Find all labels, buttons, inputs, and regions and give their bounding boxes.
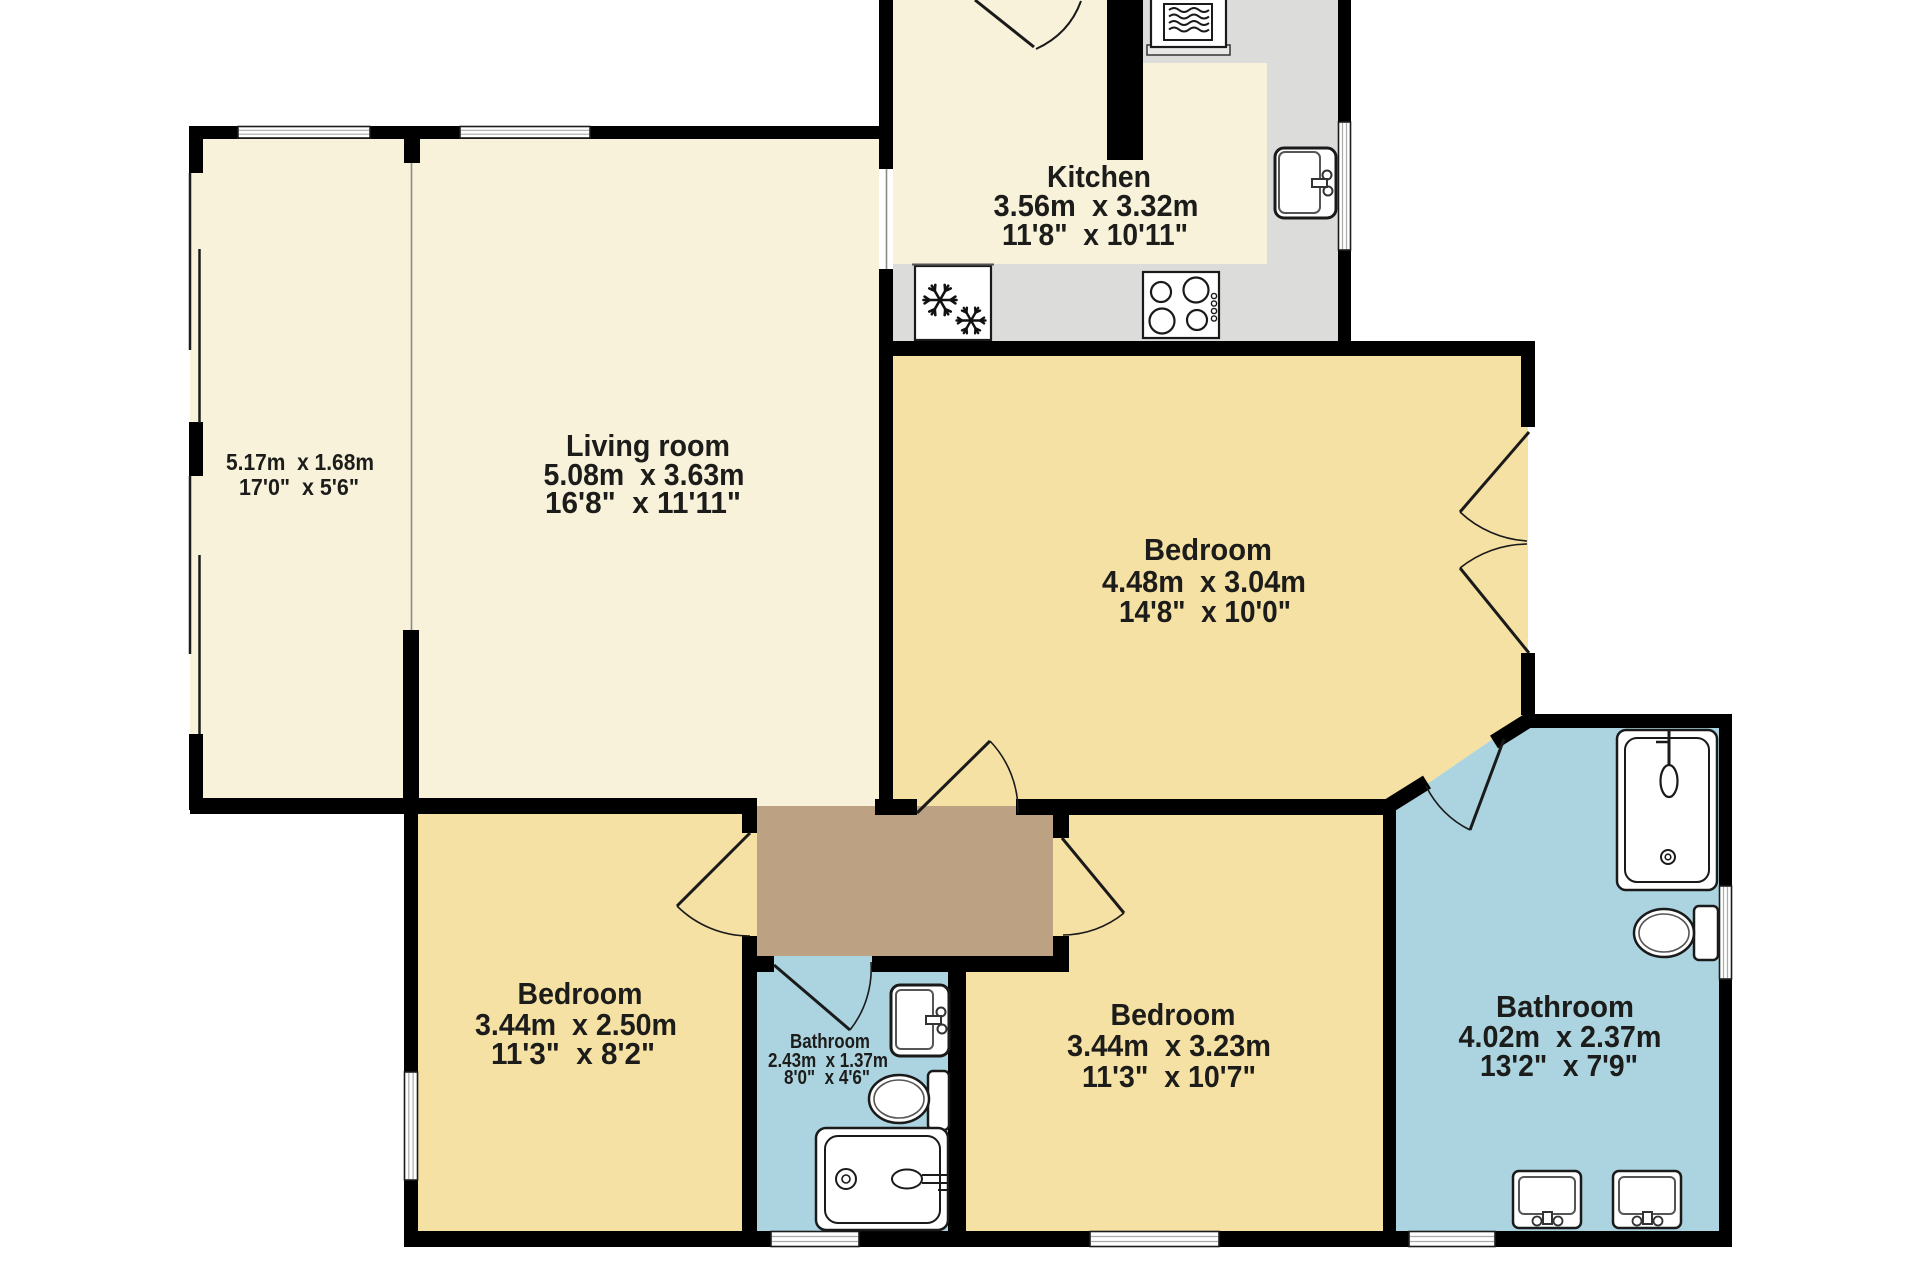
svg-text:16'8" x 11'11": 16'8" x 11'11" [545, 485, 741, 520]
svg-text:11'3" x 8'2": 11'3" x 8'2" [491, 1036, 655, 1071]
svg-text:17'0" x 5'6": 17'0" x 5'6" [239, 474, 359, 500]
svg-text:3.44m x 3.23m: 3.44m x 3.23m [1067, 1028, 1271, 1063]
svg-text:13'2" x 7'9": 13'2" x 7'9" [1480, 1048, 1638, 1083]
svg-text:14'8" x 10'0": 14'8" x 10'0" [1119, 594, 1291, 629]
svg-text:Bedroom: Bedroom [1144, 532, 1272, 567]
svg-text:Bedroom: Bedroom [518, 976, 643, 1011]
svg-text:11'3" x 10'7": 11'3" x 10'7" [1082, 1059, 1256, 1094]
svg-text:8'0" x 4'6": 8'0" x 4'6" [784, 1067, 870, 1089]
svg-text:11'8" x 10'11": 11'8" x 10'11" [1002, 217, 1188, 252]
svg-text:Bedroom: Bedroom [1111, 997, 1236, 1032]
svg-text:5.17m x 1.68m: 5.17m x 1.68m [226, 449, 374, 475]
